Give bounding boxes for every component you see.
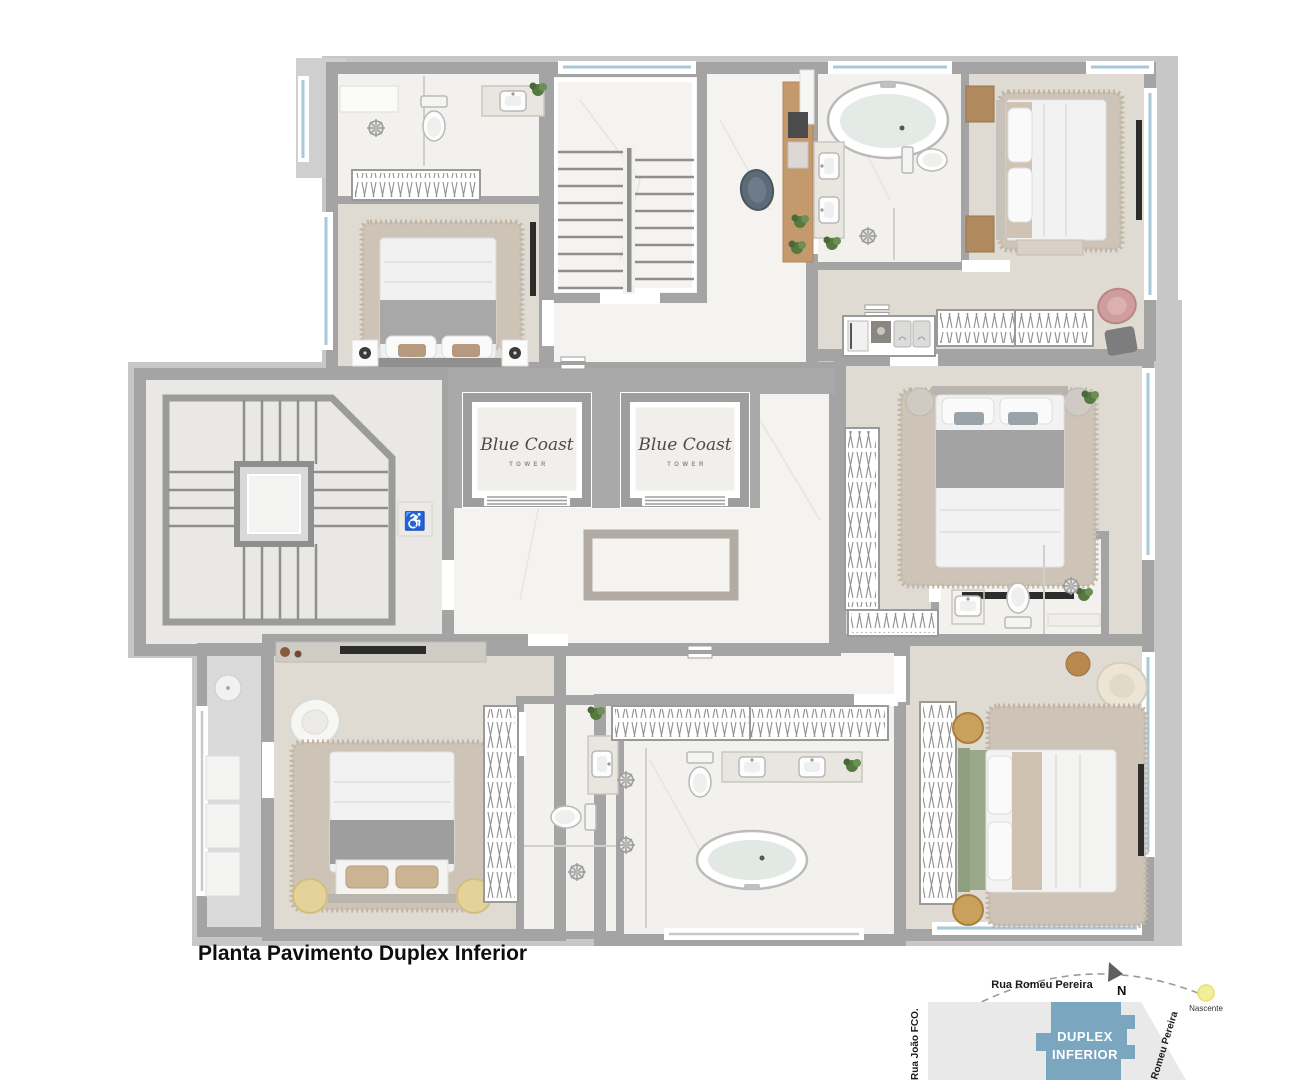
ottoman — [1104, 326, 1138, 357]
laundry — [843, 316, 935, 356]
sink-icon — [819, 153, 839, 179]
building-label-line2: INFERIOR — [1052, 1047, 1118, 1062]
shower-bench — [1048, 614, 1100, 626]
elevator-cab-2: Blue Coast TOWER — [620, 392, 750, 508]
decor-vase — [295, 651, 302, 658]
shower-bench — [340, 86, 398, 112]
elevator-door-sill — [484, 494, 570, 506]
door-balcony — [262, 742, 274, 798]
window — [320, 212, 333, 350]
bathtub-icon — [697, 831, 807, 889]
washer-icon — [894, 321, 911, 347]
dryer-icon — [913, 321, 930, 347]
desk-book — [788, 112, 808, 138]
tv-icon — [530, 222, 536, 296]
hall-floor-inlay — [588, 534, 734, 596]
bed-icon — [328, 752, 456, 903]
bed-icon — [958, 748, 1116, 892]
stair-rail — [627, 148, 632, 292]
lamp-icon — [509, 347, 521, 359]
bed-icon — [996, 100, 1106, 255]
toilet-icon — [687, 752, 713, 797]
hall-top-floor — [548, 68, 812, 368]
tv-icon — [1138, 764, 1144, 856]
wardrobe-icon — [848, 610, 938, 636]
sink-icon — [739, 757, 765, 777]
door-suite4 — [894, 656, 906, 702]
desk-laptop — [788, 142, 808, 168]
window — [558, 61, 696, 74]
side-table — [1066, 652, 1090, 676]
pouf-icon — [293, 879, 327, 913]
page-title: Planta Pavimento Duplex Inferior — [198, 942, 527, 965]
sink-icon — [819, 197, 839, 223]
tv-icon — [1136, 120, 1142, 220]
elevator-brand-sub: TOWER — [509, 462, 549, 468]
balcony-bench — [206, 756, 240, 800]
nightstand — [966, 86, 994, 122]
elevator-pit — [237, 464, 311, 544]
toilet-icon — [551, 804, 596, 830]
toilet-icon — [902, 147, 947, 173]
elevator-brand: Blue Coast — [637, 435, 731, 455]
bed-icon — [374, 238, 504, 367]
street-label-left: Rua João FCO. — [910, 1008, 921, 1080]
door-master1 — [962, 260, 1010, 272]
bathtub-icon — [828, 82, 948, 158]
balcony-bench — [206, 804, 240, 848]
window — [1142, 368, 1155, 560]
tv-icon — [340, 646, 426, 654]
elevator-brand: Blue Coast — [479, 435, 573, 455]
wardrobe-icon — [920, 702, 956, 904]
toilet-icon — [421, 96, 447, 141]
window — [828, 61, 952, 74]
vanity — [722, 752, 862, 782]
side-table — [906, 388, 934, 416]
vanity — [814, 142, 844, 238]
north-arrow-icon — [1108, 962, 1123, 982]
door-core — [442, 560, 454, 610]
street-label-top: Rua Romeu Pereira — [991, 979, 1093, 991]
sink-icon — [799, 757, 825, 777]
wardrobe-icon — [845, 428, 879, 610]
sink-icon — [955, 596, 981, 616]
wardrobe-icon — [612, 706, 888, 740]
door-suite3 — [528, 634, 568, 646]
sun-label: Nascente — [1189, 1004, 1223, 1013]
balcony-bench — [206, 852, 240, 896]
window — [1144, 88, 1157, 300]
sink-icon — [592, 751, 612, 777]
window — [664, 928, 864, 940]
wardrobe-icon — [352, 170, 480, 200]
building-label-line1: DUPLEX — [1057, 1029, 1113, 1044]
floor-plan-image: ♿ Blue Coast TOWER Blue Coast TOWER — [0, 0, 1303, 1080]
elevator-cab-1: Blue Coast TOWER — [462, 392, 592, 508]
north-label: N — [1117, 983, 1126, 998]
sink-icon — [500, 91, 526, 111]
elevator-brand-sub: TOWER — [667, 462, 707, 468]
door-suite1 — [542, 300, 554, 346]
lamp-icon — [359, 347, 371, 359]
bed-bench — [1017, 240, 1083, 255]
decor-vase — [280, 647, 290, 657]
sun-icon — [1198, 985, 1214, 1001]
pouf-icon — [953, 713, 983, 743]
bed-icon — [932, 386, 1068, 567]
accessibility-icon: ♿ — [404, 510, 426, 531]
pouf-icon — [953, 895, 983, 925]
window — [298, 76, 309, 162]
location-minimap: DUPLEX INFERIOR N Rua Romeu Pereira Nasc… — [910, 962, 1223, 1080]
toilet-icon — [1005, 583, 1031, 628]
door-master-bath — [854, 694, 898, 706]
nightstand — [966, 216, 994, 252]
window — [1086, 61, 1154, 74]
wardrobe-icon — [937, 310, 1093, 346]
wardrobe-icon — [484, 706, 518, 902]
elevator-door-sill — [642, 494, 728, 506]
